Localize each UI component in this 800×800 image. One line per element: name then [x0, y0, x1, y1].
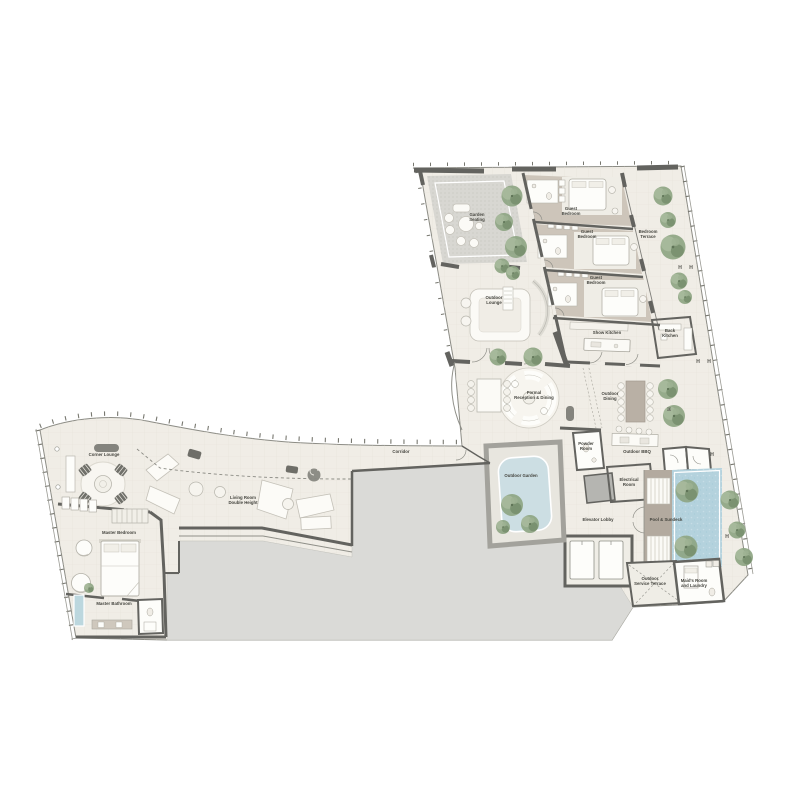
room-label-corner-lounge: Corner Lounge [89, 452, 120, 457]
floor-plan-drawing: GardenSeatingGuestBedroomGuestBedroomGue… [0, 0, 800, 800]
h-marker: H [689, 265, 693, 271]
room-label-garden-seating: GardenSeating [469, 212, 485, 222]
elevator-block [565, 536, 632, 586]
room-label-elevator-lobby: Elevator Lobby [582, 517, 614, 522]
room-label-outdoor-dining: OutdoorDining [602, 391, 619, 401]
floor-plan-stage: GardenSeatingGuestBedroomGuestBedroomGue… [0, 0, 800, 800]
master-tub [74, 595, 84, 626]
h-marker: H [725, 534, 729, 540]
elevator-car [599, 541, 623, 579]
h-marker: H [710, 452, 714, 458]
room-label-outdoor-bbq: Outdoor BBQ [623, 449, 651, 454]
column [56, 485, 60, 489]
h-marker: H [665, 407, 671, 411]
room-label-powder-room: PowderRoom [578, 441, 594, 451]
h-marker: H [707, 359, 711, 365]
room-label-bedroom-terrace: BedroomTerrace [639, 229, 658, 239]
room-label-outdoor-garden: Outdoor Garden [504, 473, 538, 478]
room-label-living-room: Living RoomDouble Height [228, 495, 258, 505]
h-marker: H [696, 359, 700, 365]
room-label-show-kitchen: Show Kitchen [593, 330, 622, 335]
column [55, 447, 59, 451]
room-label-master-bedroom: Master Bedroom [102, 530, 136, 535]
stair [112, 509, 148, 523]
room-label-outdoor-lounge: OutdoorLounge [486, 295, 503, 305]
elevator-car [570, 541, 594, 579]
room-label-corridor: Corridor [392, 449, 410, 454]
room-label-pool-sundeck: Pool & Sundeck [650, 517, 683, 522]
room-label-maids-room-laundry: Maid's Roomand Laundry [681, 578, 708, 588]
h-marker: H [678, 265, 682, 271]
room-label-master-bathroom: Master Bathroom [96, 601, 132, 606]
lounge-console [94, 444, 119, 452]
